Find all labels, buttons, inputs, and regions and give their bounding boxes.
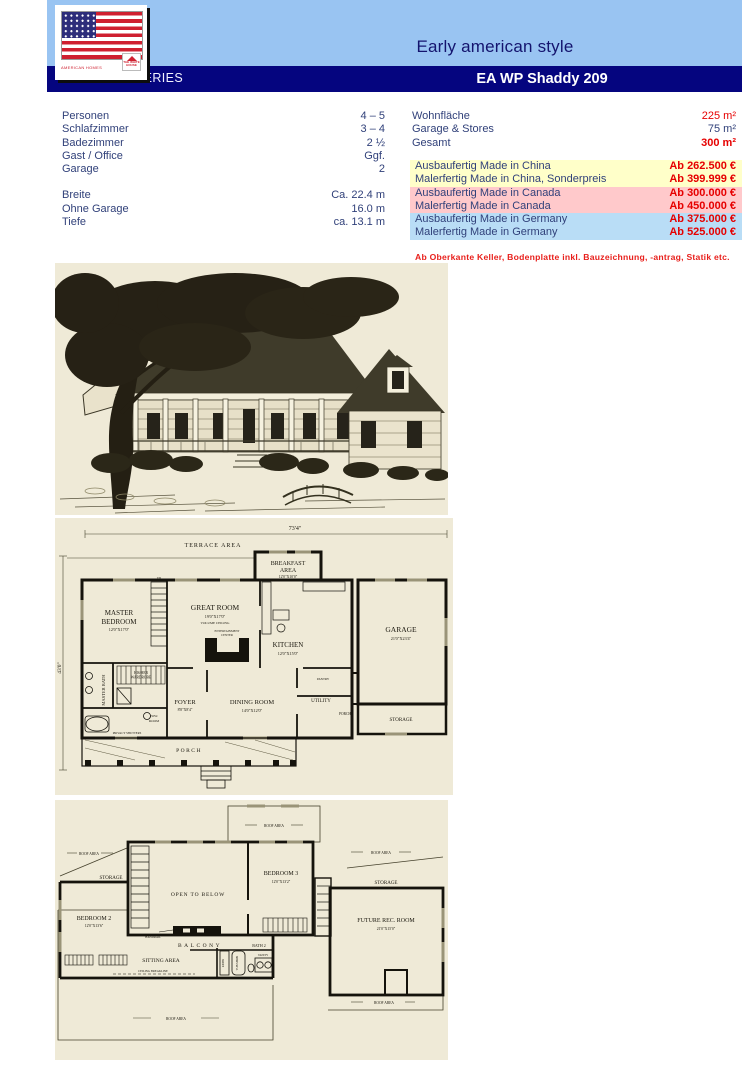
price-label: Ausbaufertig Made in Canada [415, 187, 561, 200]
spec-label: Personen [62, 110, 109, 123]
svg-text:ROOF AREA: ROOF AREA [374, 1001, 394, 1005]
price-label: Ausbaufertig Made in Germany [415, 213, 567, 226]
porch [82, 738, 296, 788]
label-ceiling-breakline: CEILING BREAKLINE [138, 969, 168, 973]
spec-label: Badezimmer [62, 137, 124, 150]
svg-text:12'0"X15'0": 12'0"X15'0" [278, 651, 299, 656]
price-value: Ab 450.000 € [669, 200, 736, 213]
svg-text:ROOM: ROOM [149, 719, 159, 723]
svg-text:12'0"X10'0": 12'0"X10'0" [279, 575, 298, 579]
spec-value: 16.0 m [351, 203, 385, 216]
spec-label: Schlafzimmer [62, 123, 129, 136]
svg-text:8'8"X8'4": 8'8"X8'4" [178, 708, 193, 712]
window-hatch [65, 955, 127, 965]
logo-caption-row: AMERICAN HOMES THE WHITE HOUSE [61, 61, 141, 77]
room-label-breakfast: BREAKFAST [271, 561, 306, 567]
room-label-kitchen: KITCHEN [273, 641, 304, 649]
room-label-bedroom2: BEDROOM 2 [77, 916, 112, 922]
room-label-dining: DINING ROOM [230, 699, 274, 706]
spec-value: 3 – 4 [361, 123, 385, 136]
room-label-master-bath: MASTER BATH [101, 674, 106, 706]
price-row: Ausbaufertig Made in ChinaAb 262.500 € [410, 160, 742, 173]
flag-logo: AMERICAN HOMES THE WHITE HOUSE [55, 5, 147, 80]
flag-canton-icon [62, 12, 96, 38]
logo-brand-text: AMERICAN HOMES [61, 65, 102, 70]
label-handrail: HANDRAIL [145, 935, 161, 939]
style-title: Early american style [255, 37, 735, 57]
staircase [131, 846, 331, 928]
foot-bridge [283, 484, 353, 505]
model-title: EA WP Shaddy 209 [302, 71, 742, 87]
room-label-rear-porch: PORCH [339, 712, 351, 716]
spec-row: Garage2 [62, 163, 385, 176]
plan-width-dim: 73'4" [289, 526, 302, 532]
spec-row: Badezimmer2 ½ [62, 137, 385, 150]
room-label-master: MASTER [105, 609, 134, 617]
room-label-balcony: BALCONY [178, 943, 222, 949]
room-label-pantry: PANTRY [317, 677, 330, 681]
spec-value: 225 m² [702, 110, 736, 123]
room-labels: MASTER BEDROOM 12'0"X17'0" GREAT ROOM 19… [101, 561, 417, 754]
label-tub: TUB/SHWR [236, 956, 239, 971]
spec-row: Wohnfläche225 m² [412, 110, 742, 123]
spec-label: Wohnfläche [412, 110, 470, 123]
spec-label: Gast / Office [62, 150, 123, 163]
price-value: Ab 262.500 € [669, 160, 736, 173]
price-row: Malerfertig Made in China, SonderpreisAb… [410, 173, 742, 186]
room-label-porch: PORCH [176, 748, 202, 754]
spec-table-left: Personen4 – 5 Schlafzimmer3 – 4 Badezimm… [62, 110, 385, 229]
label-roof-area: ROOF AREA [79, 852, 99, 856]
house-sketch [55, 263, 448, 515]
price-value: Ab 375.000 € [669, 213, 736, 226]
spec-value: Ca. 22.4 m [331, 189, 385, 202]
floorplan-first: 73'4" 43'0" TERRACE AREA [55, 518, 453, 795]
svg-text:12'0"X13'2": 12'0"X13'2" [272, 880, 291, 884]
house-illustration-image [55, 263, 448, 515]
bath-fixtures [85, 673, 151, 733]
price-table: Ausbaufertig Made in ChinaAb 262.500 € M… [410, 160, 742, 240]
svg-text:AREA: AREA [280, 568, 297, 574]
spec-value: 75 m² [708, 123, 736, 136]
entertainment-center [205, 638, 249, 662]
price-row: Malerfertig Made in CanadaAb 450.000 € [410, 200, 742, 213]
svg-text:21'0"X23'4": 21'0"X23'4" [391, 636, 412, 641]
spec-label: Gesamt [412, 137, 451, 150]
room-label-wardrobe: HIS/HER [134, 671, 149, 675]
floorplan-second-image: ROOF AREA ROOF AREA ROOF AREA ROOF AREA … [55, 800, 448, 1060]
room-label-bath2: BATH 2 [252, 943, 265, 948]
plan-depth-dim: 43'0" [57, 662, 63, 674]
spec-row: Gesamt300 m² [412, 137, 742, 150]
spec-row: Schlafzimmer3 – 4 [62, 123, 385, 136]
spec-label: Tiefe [62, 216, 86, 229]
brochure-page: Early american style STANDARD SERIES EA … [0, 0, 742, 1085]
spec-table-right: Wohnfläche225 m² Garage & Stores75 m² Ge… [412, 110, 742, 150]
room-label-foyer: FOYER [174, 699, 196, 706]
room-label-storage: STORAGE [390, 718, 413, 723]
svg-text:VOLUME CEILING: VOLUME CEILING [201, 621, 230, 625]
floorplan-second: ROOF AREA ROOF AREA ROOF AREA ROOF AREA … [55, 800, 448, 1060]
price-value: Ab 300.000 € [669, 187, 736, 200]
spec-label: Breite [62, 189, 91, 202]
price-label: Malerfertig Made in Germany [415, 226, 557, 239]
room-label-utility: UTILITY [311, 699, 331, 704]
room-label-terrace: TERRACE AREA [185, 543, 242, 549]
spec-row: Gast / OfficeGgf. [62, 150, 385, 163]
label-privacy-shutters: PRIVACY SHUTTERS [113, 731, 142, 735]
footnote: Ab Oberkante Keller, Bodenplatte inkl. B… [415, 252, 742, 262]
price-value: Ab 525.000 € [669, 226, 736, 239]
svg-text:ROOF AREA: ROOF AREA [166, 1017, 186, 1021]
svg-text:12'0"X13'6": 12'0"X13'6" [85, 924, 104, 928]
stair-up-label: UP [157, 576, 162, 580]
label-open-to-below: OPEN TO BELOW [171, 892, 225, 898]
kitchen-counters [262, 582, 345, 634]
svg-text:19'0"X17'0": 19'0"X17'0" [205, 614, 226, 619]
svg-text:WARDROBE: WARDROBE [131, 676, 152, 680]
spec-row: Personen4 – 5 [62, 110, 385, 123]
spec-row: BreiteCa. 22.4 m [62, 189, 385, 202]
price-row: Malerfertig Made in GermanyAb 525.000 € [410, 226, 742, 239]
spec-value: 2 ½ [367, 137, 385, 150]
room-label-storage-left: STORAGE [100, 876, 123, 881]
room-label-great-room: GREAT ROOM [191, 603, 240, 612]
whitehouse-badge-icon: THE WHITE HOUSE [122, 53, 141, 71]
spec-label: Garage [62, 163, 99, 176]
svg-text:12'0"X17'0": 12'0"X17'0" [109, 627, 130, 632]
spacer [62, 176, 385, 189]
floorplan-first-image: 73'4" 43'0" TERRACE AREA [55, 518, 453, 795]
spec-label: Garage & Stores [412, 123, 494, 136]
staircase [151, 582, 167, 646]
price-label: Malerfertig Made in Canada [415, 200, 551, 213]
svg-text:ROOF AREA: ROOF AREA [264, 824, 284, 828]
label-linen: LINEN [222, 959, 225, 967]
spec-row: Garage & Stores75 m² [412, 123, 742, 136]
badge-text: THE WHITE HOUSE [123, 61, 140, 67]
svg-text:CENTER: CENTER [221, 633, 233, 637]
room-label-sitting: SITTING AREA [142, 958, 179, 964]
price-row: Ausbaufertig Made in GermanyAb 375.000 € [410, 213, 742, 226]
price-value: Ab 399.999 € [669, 173, 736, 186]
room-label-storage-right: STORAGE [375, 881, 398, 886]
price-label: Malerfertig Made in China, Sonderpreis [415, 173, 606, 186]
spec-label: Ohne Garage [62, 203, 129, 216]
spec-value: ca. 13.1 m [334, 216, 385, 229]
price-label: Ausbaufertig Made in China [415, 160, 551, 173]
room-label-bedroom3: BEDROOM 3 [264, 871, 299, 877]
label-vanity: VANITY [258, 954, 268, 957]
svg-text:ROOF AREA: ROOF AREA [371, 851, 391, 855]
spec-value: 300 m² [701, 137, 736, 150]
spec-row: Tiefeca. 13.1 m [62, 216, 385, 229]
room-label-powder: POW. [150, 714, 158, 718]
svg-text:BEDROOM: BEDROOM [101, 618, 137, 626]
svg-text:14'0"X12'0": 14'0"X12'0" [242, 708, 263, 713]
spec-row: Ohne Garage16.0 m [62, 203, 385, 216]
room-label-garage: GARAGE [385, 625, 417, 634]
closet-hatch [263, 918, 307, 932]
spec-value: 2 [379, 163, 385, 176]
spec-value: 4 – 5 [361, 110, 385, 123]
stone-path [85, 488, 225, 506]
spec-value: Ggf. [364, 150, 385, 163]
room-label-future-rec: FUTURE REC. ROOM [357, 918, 415, 924]
svg-text:21'0"X15'0": 21'0"X15'0" [377, 927, 396, 931]
series-banner: STANDARD SERIES EA WP Shaddy 209 [47, 66, 742, 92]
price-row: Ausbaufertig Made in CanadaAb 300.000 € [410, 187, 742, 200]
